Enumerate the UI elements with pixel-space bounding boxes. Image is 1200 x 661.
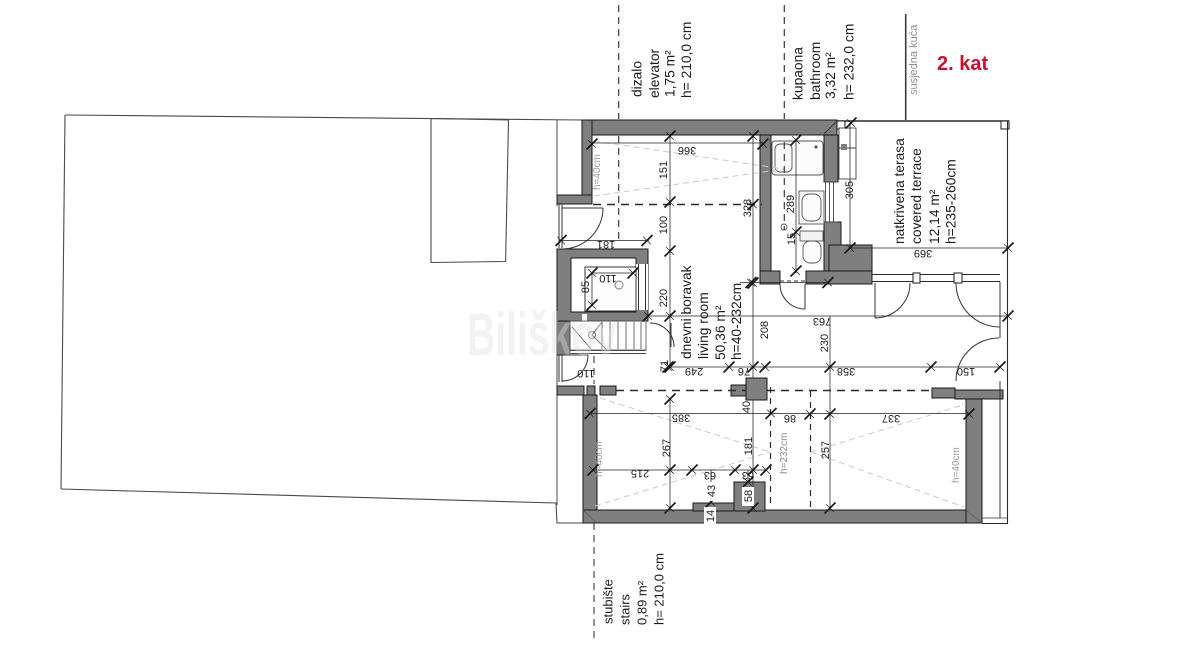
svg-text:h=40cm: h=40cm — [594, 441, 605, 477]
svg-text:249: 249 — [685, 365, 703, 377]
svg-text:h=40cm: h=40cm — [951, 447, 962, 483]
svg-text:385: 385 — [672, 412, 690, 424]
svg-text:220: 220 — [658, 289, 670, 307]
svg-text:3,32 m²: 3,32 m² — [823, 52, 838, 99]
svg-text:230: 230 — [819, 334, 831, 352]
svg-text:0,89 m²: 0,89 m² — [635, 580, 650, 625]
svg-text:100: 100 — [658, 216, 670, 234]
svg-text:151: 151 — [658, 161, 670, 179]
svg-text:h=40cm: h=40cm — [592, 154, 603, 190]
svg-text:110: 110 — [599, 272, 617, 284]
svg-text:susjedna kuća: susjedna kuća — [908, 24, 920, 95]
svg-text:305: 305 — [844, 181, 856, 199]
svg-text:71: 71 — [659, 360, 671, 372]
svg-text:50,36 m²: 50,36 m² — [713, 305, 728, 360]
svg-text:43: 43 — [706, 485, 718, 497]
svg-text:63: 63 — [704, 469, 716, 481]
svg-text:267: 267 — [661, 439, 673, 457]
svg-text:h=235-260cm: h=235-260cm — [944, 159, 959, 244]
svg-text:63: 63 — [742, 469, 754, 481]
svg-text:110: 110 — [577, 367, 595, 379]
svg-text:h= 232,0 cm: h= 232,0 cm — [842, 24, 857, 100]
svg-text:h=40-232cm: h=40-232cm — [729, 283, 744, 360]
svg-text:76: 76 — [738, 365, 750, 377]
svg-text:h= 210,0 cm: h= 210,0 cm — [679, 22, 694, 98]
svg-text:elevator: elevator — [647, 49, 662, 98]
svg-text:369: 369 — [914, 247, 932, 259]
svg-text:58: 58 — [743, 490, 755, 502]
svg-text:358: 358 — [837, 365, 855, 377]
svg-text:215: 215 — [631, 467, 649, 479]
svg-text:763: 763 — [813, 315, 831, 327]
svg-text:stubište: stubište — [601, 579, 616, 624]
svg-text:2. kat: 2. kat — [937, 53, 988, 75]
svg-text:stairs: stairs — [618, 593, 633, 625]
svg-text:40: 40 — [741, 401, 753, 413]
svg-text:dnevni boravak: dnevni boravak — [679, 265, 694, 359]
svg-text:181: 181 — [743, 437, 755, 455]
svg-text:150: 150 — [957, 365, 975, 377]
svg-text:bathroom: bathroom — [808, 42, 823, 100]
svg-text:h=232cm: h=232cm — [779, 433, 790, 474]
svg-text:h= 210,0 cm: h= 210,0 cm — [652, 553, 667, 625]
svg-text:289: 289 — [785, 195, 797, 213]
svg-text:1,75 m²: 1,75 m² — [663, 50, 678, 97]
svg-text:12,14 m²: 12,14 m² — [927, 189, 942, 244]
svg-text:257: 257 — [820, 441, 832, 459]
svg-text:181: 181 — [597, 238, 615, 250]
svg-text:337: 337 — [882, 412, 900, 424]
svg-text:85: 85 — [580, 281, 592, 293]
svg-text:328: 328 — [742, 199, 754, 217]
svg-text:kupaona: kupaona — [791, 47, 806, 100]
svg-text:natkrivena terasa: natkrivena terasa — [892, 138, 907, 244]
svg-text:208: 208 — [759, 321, 771, 339]
svg-text:366: 366 — [678, 144, 696, 156]
svg-text:14: 14 — [705, 510, 717, 522]
svg-text:living room: living room — [696, 292, 711, 359]
svg-text:dizalo: dizalo — [630, 61, 645, 97]
svg-text:Biliškov: Biliškov — [467, 301, 617, 368]
svg-text:86: 86 — [784, 412, 796, 424]
svg-text:15: 15 — [786, 233, 798, 245]
svg-text:covered terrace: covered terrace — [909, 148, 924, 244]
